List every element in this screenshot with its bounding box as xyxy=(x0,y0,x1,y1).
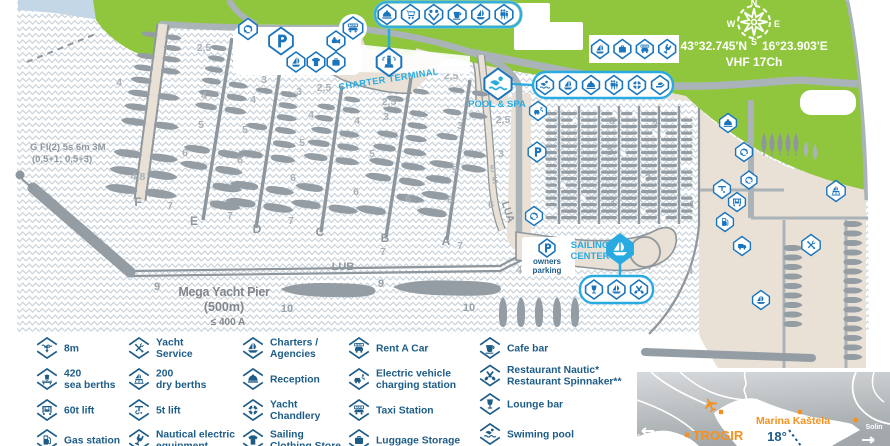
svg-text:VHF 17Ch: VHF 17Ch xyxy=(726,55,783,69)
svg-text:2,5: 2,5 xyxy=(317,82,332,94)
svg-text:POOL & SPA: POOL & SPA xyxy=(468,99,526,110)
svg-text:10: 10 xyxy=(281,303,293,315)
svg-text:5: 5 xyxy=(492,175,498,187)
svg-text:(500m): (500m) xyxy=(204,300,244,314)
svg-text:Cafe bar: Cafe bar xyxy=(507,344,548,355)
svg-text:parking: parking xyxy=(533,266,562,275)
svg-text:sea berths: sea berths xyxy=(64,380,116,391)
svg-text:E: E xyxy=(190,214,198,228)
svg-text:Swiming pool: Swiming pool xyxy=(507,430,574,441)
svg-text:RENT: RENT xyxy=(642,46,648,48)
svg-text:Yacht: Yacht xyxy=(156,338,184,349)
svg-text:7: 7 xyxy=(227,210,233,222)
svg-text:6: 6 xyxy=(488,199,494,211)
svg-text:W: W xyxy=(727,19,736,29)
svg-text:charging station: charging station xyxy=(376,380,456,391)
svg-text:B: B xyxy=(381,231,390,245)
svg-text:8m: 8m xyxy=(64,344,79,355)
svg-text:420: 420 xyxy=(64,369,81,380)
svg-text:Nautical electric: Nautical electric xyxy=(156,430,235,441)
svg-text:dry berths: dry berths xyxy=(156,380,207,391)
svg-text:equipment: equipment xyxy=(156,441,209,446)
svg-text:6: 6 xyxy=(447,194,453,206)
svg-text:Restaurant Nautic*: Restaurant Nautic* xyxy=(507,365,599,376)
svg-text:4,8: 4,8 xyxy=(131,171,146,183)
svg-text:Charters /: Charters / xyxy=(270,338,318,349)
svg-text:A: A xyxy=(442,234,451,248)
svg-text:5: 5 xyxy=(299,137,305,149)
svg-text:18°: 18° xyxy=(767,429,787,444)
svg-text:3: 3 xyxy=(457,120,463,132)
svg-text:5: 5 xyxy=(369,148,375,160)
svg-text:7: 7 xyxy=(288,215,294,227)
svg-text:6: 6 xyxy=(405,193,411,205)
svg-text:16°23.903'E: 16°23.903'E xyxy=(762,39,828,53)
svg-text:4: 4 xyxy=(687,265,693,277)
svg-text:43°32.745'N: 43°32.745'N xyxy=(681,39,747,53)
svg-text:C: C xyxy=(316,225,325,239)
svg-text:SAILING: SAILING xyxy=(571,240,610,251)
svg-text:4: 4 xyxy=(354,115,360,127)
svg-text:Solin: Solin xyxy=(865,424,882,431)
svg-text:10: 10 xyxy=(463,302,475,314)
svg-text:5: 5 xyxy=(242,124,248,136)
svg-text:D: D xyxy=(253,222,262,236)
svg-text:Yacht: Yacht xyxy=(270,400,298,411)
svg-text:60t lift: 60t lift xyxy=(64,406,95,417)
svg-text:2,5: 2,5 xyxy=(496,114,511,126)
svg-text:F: F xyxy=(134,195,141,209)
svg-text:Gas station: Gas station xyxy=(64,436,120,446)
svg-text:Electric vehicle: Electric vehicle xyxy=(376,369,451,380)
svg-text:6: 6 xyxy=(237,154,243,166)
svg-text:Marina Kaštela: Marina Kaštela xyxy=(756,415,830,427)
svg-text:4: 4 xyxy=(201,90,207,102)
svg-text:Sailing: Sailing xyxy=(270,430,304,441)
svg-text:5: 5 xyxy=(490,163,496,175)
svg-text:4: 4 xyxy=(308,109,314,121)
svg-text:≤ 400 A: ≤ 400 A xyxy=(211,317,246,328)
svg-text:Chandlery: Chandlery xyxy=(270,411,321,422)
svg-text:Rent A Car: Rent A Car xyxy=(376,344,428,355)
svg-text:3: 3 xyxy=(296,86,302,98)
svg-text:Restaurant Spinnaker**: Restaurant Spinnaker** xyxy=(507,376,621,387)
svg-text:2,5: 2,5 xyxy=(197,42,212,54)
svg-text:S: S xyxy=(751,37,757,47)
svg-text:9: 9 xyxy=(154,281,160,293)
svg-text:Taxi Station: Taxi Station xyxy=(376,406,434,417)
svg-text:3: 3 xyxy=(498,148,504,160)
svg-text:2,5: 2,5 xyxy=(382,96,397,108)
svg-text:RENT: RENT xyxy=(356,343,363,346)
svg-text:4: 4 xyxy=(116,77,122,89)
svg-text:9: 9 xyxy=(378,278,384,290)
svg-text:(0,5+1; 0,5+3): (0,5+1; 0,5+3) xyxy=(32,154,92,165)
svg-text:Lounge bar: Lounge bar xyxy=(507,400,563,411)
svg-text:Mega Yacht Pier: Mega Yacht Pier xyxy=(178,285,270,299)
svg-text:5t lift: 5t lift xyxy=(156,406,181,417)
svg-text:6: 6 xyxy=(290,172,296,184)
svg-text:Agencies: Agencies xyxy=(270,349,316,360)
svg-text:N: N xyxy=(751,0,758,8)
svg-text:5: 5 xyxy=(452,164,458,176)
svg-text:Reception: Reception xyxy=(270,375,320,386)
svg-text:4: 4 xyxy=(516,264,522,276)
svg-text:6: 6 xyxy=(182,147,188,159)
svg-text:7: 7 xyxy=(167,200,173,212)
svg-text:7: 7 xyxy=(457,240,463,252)
svg-text:TAXI: TAXI xyxy=(350,23,356,27)
svg-text:6: 6 xyxy=(353,186,359,198)
svg-text:CENTER: CENTER xyxy=(570,251,609,262)
svg-text:LUB: LUB xyxy=(332,261,355,273)
svg-text:7: 7 xyxy=(380,246,386,258)
svg-text:G Fl(2) 5s 6m 3M: G Fl(2) 5s 6m 3M xyxy=(30,142,106,153)
svg-text:Service: Service xyxy=(156,349,193,360)
svg-text:TROGIR: TROGIR xyxy=(693,428,744,443)
svg-text:200: 200 xyxy=(156,369,173,380)
svg-text:3: 3 xyxy=(383,111,389,123)
svg-text:4: 4 xyxy=(250,94,256,106)
svg-text:Šibenik: Šibenik xyxy=(636,433,660,442)
svg-text:3: 3 xyxy=(261,74,267,86)
svg-text:E: E xyxy=(774,19,780,29)
svg-text:owners: owners xyxy=(533,257,562,266)
svg-text:5: 5 xyxy=(198,119,204,131)
svg-text:TAXI: TAXI xyxy=(356,405,362,409)
svg-text:Luggage Storage: Luggage Storage xyxy=(376,436,460,446)
svg-text:Clothing Store: Clothing Store xyxy=(270,441,341,446)
